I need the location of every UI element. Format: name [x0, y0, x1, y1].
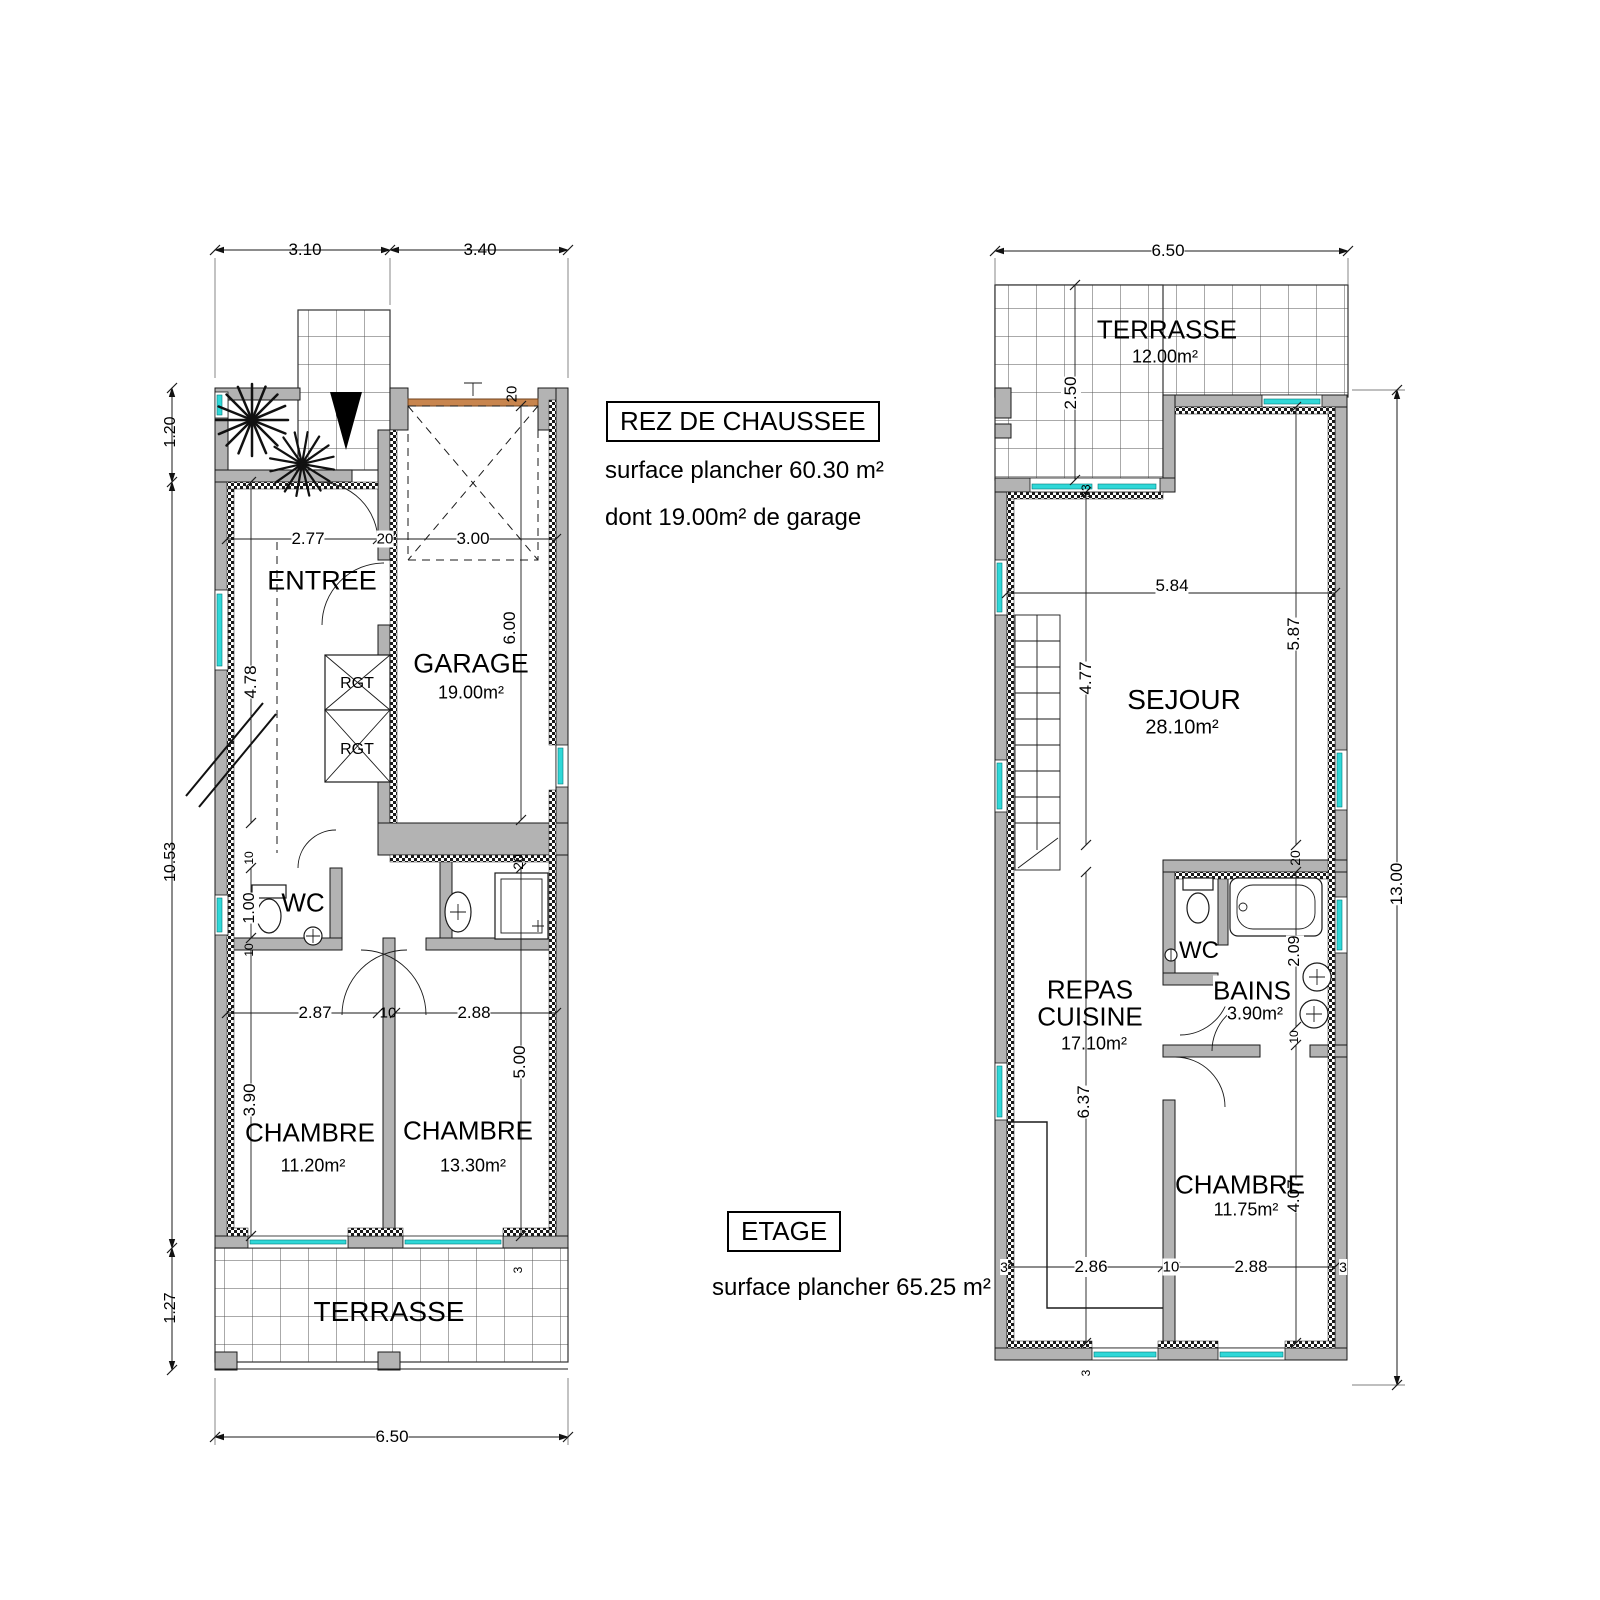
closet-label-rgt1: RGT — [340, 675, 374, 693]
dim-chambre-hall-width: 2.86 — [1074, 1257, 1107, 1277]
dim-sill-bottom-mid: 3 — [1079, 1370, 1093, 1377]
room-label-garage: GARAGE — [413, 649, 529, 680]
dim-wall-entree: 20 — [377, 531, 394, 548]
dim-garage-width: 3.00 — [456, 529, 489, 549]
room-area-sejour: 28.10m² — [1145, 717, 1218, 740]
floor-plan-sheet: 3.10 3.40 1.20 10.53 1.27 2.77 20 3.00 6… — [0, 0, 1600, 1600]
room-area-repas: 17.10m² — [1061, 1034, 1127, 1055]
dim-chambre1-width: 2.87 — [298, 1003, 331, 1023]
basin-icon — [445, 892, 471, 932]
floor-drain-icon — [304, 927, 322, 945]
stairs — [1015, 615, 1060, 870]
dim-chambre2-depth: 5.00 — [510, 1045, 530, 1078]
dim-chambre2-width: 2.88 — [457, 1003, 490, 1023]
room-label-sejour: SEJOUR — [1127, 684, 1241, 716]
dim-sill-bottom-right: 3 — [1339, 1259, 1347, 1275]
room-area-chambre-etage: 11.75m² — [1214, 1200, 1279, 1221]
dim-entree-width: 2.77 — [291, 529, 324, 549]
dim-hall-depth: 4.78 — [241, 665, 261, 698]
twin-basins-icon — [1300, 963, 1331, 1028]
dim-sill-bottom-left: 3 — [1000, 1259, 1008, 1275]
room-area-chambre2: 13.30m² — [440, 1156, 506, 1177]
closet-label-rgt2: RGT — [340, 741, 374, 759]
dim-wc-wall-bottom: 10 — [242, 943, 256, 956]
dim-chambre-depth: 3.90 — [240, 1083, 260, 1116]
kitchen-counter — [1007, 1122, 1163, 1308]
etage-title: ETAGE — [727, 1211, 841, 1252]
dim-wall-mid: 20 — [510, 854, 526, 870]
dim-top-left: 3.10 — [288, 240, 321, 260]
dim-side-height: 13.00 — [1387, 863, 1407, 906]
dim-sejour-left: 4.77 — [1076, 661, 1096, 694]
room-label-wc-etage: WC — [1179, 937, 1219, 965]
dim-sill-top: 33 — [1079, 484, 1093, 497]
dim-side-bottom: 1.27 — [162, 1292, 180, 1323]
dim-chambre-width-etage: 2.88 — [1234, 1257, 1267, 1277]
dim-divider: 10 — [380, 1005, 397, 1022]
dim-wall-bottom: 10 — [1163, 1259, 1180, 1276]
dim-etage-top-width: 6.50 — [1151, 241, 1184, 261]
room-label-repas-2: CUISINE — [1037, 1002, 1142, 1033]
dim-wall-bains-bottom: 10 — [1287, 1030, 1301, 1043]
dim-wall-bains: 20 — [1287, 850, 1303, 866]
room-area-terrasse-etage: 12.00m² — [1132, 347, 1198, 368]
dim-repas-depth: 6.37 — [1074, 1085, 1094, 1118]
room-label-chambre2: CHAMBRE — [403, 1116, 533, 1147]
dim-bains-depth: 2.09 — [1286, 935, 1304, 966]
room-area-chambre1: 11.20m² — [281, 1156, 346, 1177]
room-label-wc: WC — [281, 888, 324, 919]
dim-bottom-width: 6.50 — [375, 1427, 408, 1447]
dim-garage-depth: 6.00 — [500, 611, 520, 644]
ground-title: REZ DE CHAUSSEE — [606, 401, 880, 442]
dim-terrasse-depth: 2.50 — [1061, 376, 1081, 409]
room-label-chambre-etage: CHAMBRE — [1175, 1170, 1305, 1201]
room-label-chambre1: CHAMBRE — [245, 1118, 375, 1149]
dim-sill-ground: 3 — [511, 1267, 525, 1274]
dim-wc-wall-top: 10 — [242, 851, 256, 864]
room-area-garage: 19.00m² — [438, 683, 504, 704]
room-label-terrasse-ground: TERRASSE — [314, 1296, 465, 1328]
room-label-bains: BAINS — [1213, 976, 1291, 1007]
dim-side-top: 1.20 — [162, 416, 180, 447]
plan-drawing — [0, 0, 1600, 1600]
dim-sejour-width: 5.84 — [1155, 576, 1188, 596]
etage-surface-line1: surface plancher 65.25 m² — [712, 1274, 991, 1302]
shower-icon — [495, 873, 548, 939]
entry-walkway-tiles — [298, 310, 390, 470]
paper-holder-icon — [1165, 949, 1177, 961]
ground-surface-line2: dont 19.00m² de garage — [605, 504, 861, 532]
dim-sejour-right: 5.87 — [1284, 617, 1304, 650]
room-label-terrasse-etage: TERRASSE — [1097, 315, 1237, 346]
dim-garage-door: 20 — [504, 386, 521, 403]
toilet-icon-etage — [1183, 878, 1213, 923]
ground-surface-line1: surface plancher 60.30 m² — [605, 457, 884, 485]
room-area-bains: 3.90m² — [1227, 1004, 1283, 1025]
room-label-entree: ENTREE — [267, 566, 377, 597]
ground-floor-plan — [167, 245, 573, 1445]
dim-wc-depth: 1.00 — [241, 892, 259, 923]
etage-floor-plan — [990, 246, 1405, 1390]
dim-side-mid: 10.53 — [162, 842, 180, 882]
dim-top-right: 3.40 — [463, 240, 496, 260]
bathtub-icon — [1230, 878, 1322, 936]
